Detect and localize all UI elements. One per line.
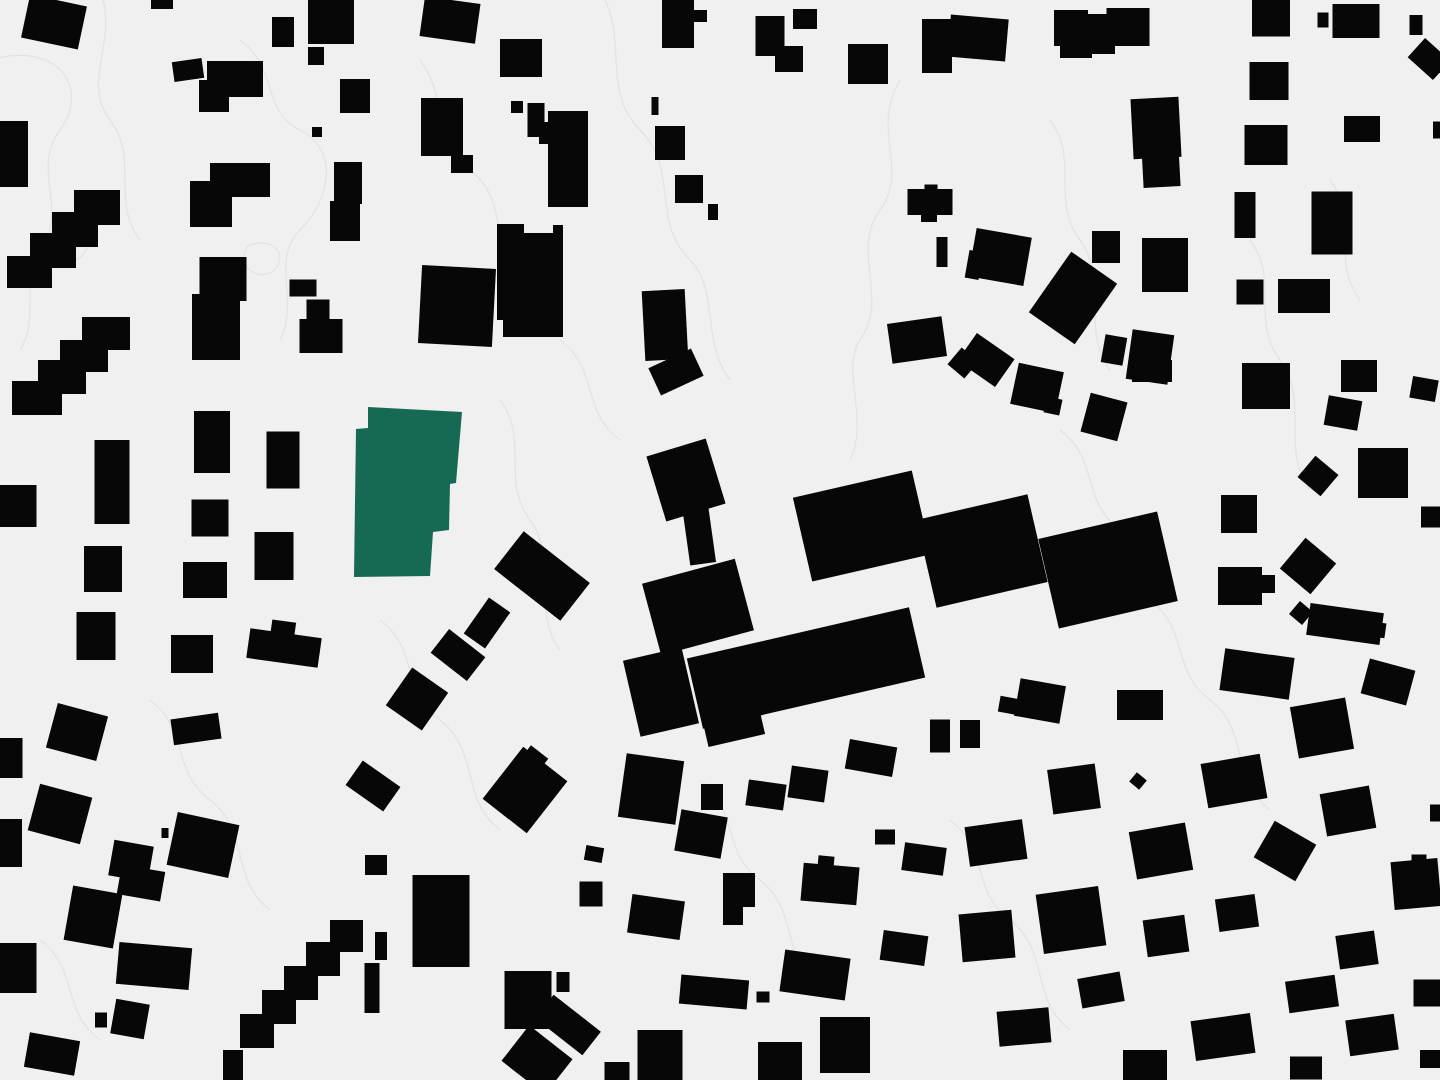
building-footprint	[1420, 1050, 1440, 1068]
building-footprint	[1129, 822, 1193, 879]
building-footprint	[84, 546, 122, 592]
building-footprint	[255, 532, 294, 580]
building-footprint	[497, 224, 563, 337]
building-footprint	[1290, 1057, 1322, 1080]
building-footprint	[627, 894, 685, 940]
building-footprint	[1320, 785, 1377, 836]
building-footprint	[675, 175, 703, 203]
figure-ground-map	[0, 0, 1440, 1080]
building-footprint	[0, 738, 23, 778]
building-footprint	[172, 58, 204, 82]
building-footprint	[1333, 4, 1380, 38]
building-footprint	[820, 1017, 870, 1073]
building-footprint	[77, 612, 116, 660]
building-footprint	[693, 10, 707, 22]
building-footprint	[793, 9, 817, 29]
building-footprint	[334, 162, 362, 204]
building-footprint	[642, 289, 689, 361]
building-footprint	[267, 432, 300, 489]
building-footprint	[1345, 1014, 1399, 1056]
building-footprint	[1335, 930, 1378, 969]
site-plan-svg	[0, 0, 1440, 1080]
building-footprint	[308, 47, 324, 65]
building-footprint	[290, 280, 317, 297]
building-footprint	[1344, 116, 1380, 142]
building-footprint	[270, 619, 296, 640]
building-footprint	[880, 930, 929, 966]
building-footprint	[901, 842, 946, 876]
building-footprint	[116, 942, 192, 990]
building-footprint	[960, 720, 980, 748]
building-footprint	[199, 80, 229, 112]
building-footprint	[800, 863, 859, 906]
building-footprint	[421, 98, 463, 156]
building-footprint	[1060, 44, 1092, 58]
building-footprint	[638, 1030, 683, 1080]
building-footprint	[674, 809, 728, 859]
building-footprint	[1358, 448, 1408, 498]
building-footprint	[652, 97, 659, 115]
building-footprint	[194, 411, 230, 473]
building-footprint	[1261, 575, 1275, 593]
building-footprint	[1047, 763, 1101, 814]
building-footprint	[375, 932, 387, 960]
building-footprint	[110, 999, 150, 1039]
building-footprint	[272, 17, 294, 47]
building-footprint	[1044, 397, 1063, 416]
building-footprint	[451, 155, 473, 173]
building-footprint	[511, 101, 523, 113]
building-footprint	[968, 228, 1032, 286]
building-footprint	[618, 753, 684, 824]
building-footprint	[95, 1013, 107, 1028]
building-footprint	[192, 500, 229, 537]
building-footprint	[1215, 894, 1259, 932]
building-footprint	[679, 975, 749, 1010]
building-footprint	[1318, 13, 1329, 28]
building-footprint	[723, 907, 743, 925]
building-footprint	[419, 0, 480, 44]
building-footprint	[1107, 8, 1150, 46]
building-footprint	[151, 0, 173, 9]
building-footprint	[922, 19, 952, 73]
building-footprint	[758, 1042, 802, 1080]
building-footprint	[183, 562, 227, 598]
building-footprint	[1123, 1050, 1167, 1080]
building-footprint	[1433, 122, 1440, 139]
building-footprint	[1218, 567, 1262, 605]
building-footprint	[708, 204, 718, 220]
building-footprint	[500, 39, 542, 77]
building-footprint	[775, 46, 803, 72]
building-footprint	[959, 910, 1016, 962]
building-footprint	[330, 201, 360, 241]
building-footprint	[413, 875, 470, 967]
building-footprint	[964, 819, 1027, 867]
building-footprint	[1410, 15, 1423, 35]
building-footprint	[1324, 395, 1363, 430]
building-footprint	[1252, 0, 1290, 37]
building-footprint	[655, 126, 685, 160]
building-footprint	[192, 294, 240, 360]
building-footprint	[300, 319, 343, 353]
building-footprint	[1036, 886, 1107, 954]
building-footprint	[1132, 360, 1172, 382]
building-footprint	[418, 265, 496, 347]
building-footprint	[701, 784, 723, 810]
building-footprint	[997, 1007, 1052, 1046]
building-footprint	[340, 79, 370, 113]
building-footprint	[95, 440, 130, 524]
building-footprint	[1092, 231, 1120, 263]
building-footprint	[925, 185, 938, 192]
building-footprint	[584, 845, 604, 863]
building-footprint	[548, 111, 588, 207]
building-footprint	[0, 485, 37, 527]
building-footprint	[0, 121, 28, 187]
building-footprint	[1191, 1013, 1256, 1061]
building-footprint	[921, 214, 937, 222]
building-footprint	[171, 635, 213, 673]
building-footprint	[937, 237, 948, 267]
building-footprint	[1242, 363, 1290, 409]
building-footprint	[930, 720, 950, 753]
building-footprint	[1372, 622, 1387, 639]
building-footprint	[1421, 507, 1440, 528]
building-footprint	[580, 882, 603, 907]
building-footprint	[887, 316, 947, 363]
building-footprint	[1414, 980, 1440, 1007]
building-footprint	[757, 992, 770, 1003]
building-footprint	[1312, 192, 1353, 255]
building-footprint	[662, 0, 694, 48]
building-footprint	[1250, 62, 1289, 100]
building-footprint	[1245, 125, 1288, 165]
building-footprint	[1235, 192, 1256, 238]
building-footprint	[818, 855, 835, 868]
building-footprint	[365, 855, 387, 875]
building-footprint	[1409, 376, 1438, 402]
building-footprint	[723, 873, 755, 907]
building-footprint	[308, 0, 354, 44]
building-footprint	[210, 163, 270, 197]
building-footprint	[1141, 144, 1180, 188]
building-footprint	[0, 819, 22, 867]
building-footprint	[365, 963, 380, 1013]
building-footprint	[1117, 690, 1163, 720]
building-footprint	[162, 828, 169, 838]
building-footprint	[1142, 238, 1188, 292]
building-footprint	[312, 127, 322, 137]
building-footprint	[875, 830, 895, 845]
building-footprint	[787, 766, 828, 803]
building-footprint	[1430, 805, 1440, 822]
building-footprint	[947, 15, 1008, 62]
building-footprint	[223, 1050, 243, 1080]
building-footprint	[1412, 855, 1427, 868]
building-footprint	[1237, 280, 1264, 305]
building-footprint	[745, 779, 786, 810]
building-footprint	[848, 44, 888, 84]
building-footprint	[1278, 279, 1330, 313]
building-footprint	[1221, 495, 1257, 533]
building-footprint	[1290, 698, 1354, 759]
building-footprint	[557, 972, 570, 992]
building-footprint	[1143, 915, 1190, 957]
building-footprint	[539, 122, 551, 144]
building-footprint	[0, 943, 37, 993]
building-footprint	[605, 1062, 630, 1080]
building-footprint	[64, 886, 123, 949]
building-footprint	[1341, 360, 1377, 392]
building-footprint	[908, 189, 953, 215]
